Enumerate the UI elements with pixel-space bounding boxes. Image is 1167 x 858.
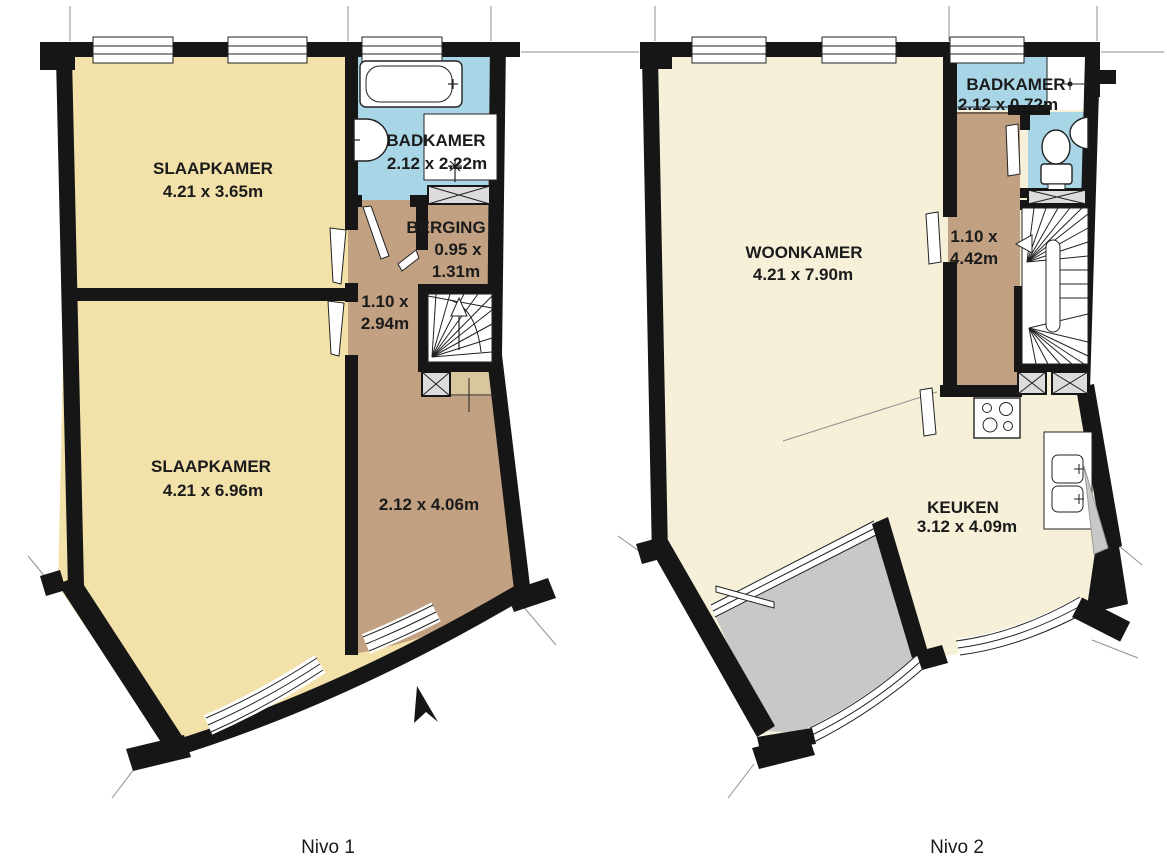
door-leaf (1006, 124, 1020, 176)
floorplan-drawing: SLAAPKAMER 4.21 x 3.65m BADKAMER 2.12 x … (0, 0, 1167, 858)
stair-rail (1046, 240, 1060, 332)
north-arrow-icon (414, 686, 438, 723)
room-dim: 2.12 x 0.72m (958, 95, 1058, 114)
window (93, 37, 173, 63)
room-dim: 4.21 x 6.96m (163, 481, 263, 500)
room-dim: 4.21 x 7.90m (753, 265, 853, 284)
window (362, 37, 442, 63)
bathtub-inner (366, 66, 452, 102)
room-label: BERGING (406, 218, 485, 237)
room-label: BADKAMER (386, 131, 485, 150)
window (692, 37, 766, 63)
room-label: SLAAPKAMER (151, 457, 271, 476)
burner (1000, 403, 1013, 416)
level-caption-nivo2: Nivo 2 (930, 837, 984, 858)
toilet-tank (1041, 164, 1072, 184)
room-label: WOONKAMER (745, 243, 862, 262)
window (822, 37, 896, 63)
burner (1004, 422, 1013, 431)
floorplan-page: SLAAPKAMER 4.21 x 3.65m BADKAMER 2.12 x … (0, 0, 1167, 858)
stove (974, 398, 1020, 438)
burner (983, 418, 997, 432)
room-label: BADKAMER (966, 75, 1065, 94)
room-dim: 2.12 x 2.22m (387, 154, 487, 173)
room-label: KEUKEN (927, 498, 999, 517)
window (950, 37, 1024, 63)
room-dim: 2.12 x 4.06m (379, 495, 479, 514)
floorplan-nivo1: SLAAPKAMER 4.21 x 3.65m BADKAMER 2.12 x … (28, 6, 639, 858)
room-dim: 2.94m (361, 314, 409, 333)
room-dim: 4.21 x 3.65m (163, 182, 263, 201)
door-leaf (926, 212, 941, 264)
room-dim: 4.42m (950, 249, 998, 268)
floorplan-nivo2: WOONKAMER 4.21 x 7.90m BADKAMER 2.12 x 0… (618, 6, 1164, 858)
window (228, 37, 307, 63)
north-windows-nivo2 (692, 37, 1024, 63)
room-label: SLAAPKAMER (153, 159, 273, 178)
room-dim: 0.95 x (434, 240, 482, 259)
north-windows-nivo1 (93, 37, 442, 63)
level-caption-nivo1: Nivo 1 (301, 837, 355, 858)
toilet-bowl (1042, 130, 1070, 164)
room-dim: 1.10 x (950, 227, 998, 246)
room-dim: 1.10 x (361, 292, 409, 311)
room-dim: 3.12 x 4.09m (917, 517, 1017, 536)
room-dim: 1.31m (432, 262, 480, 281)
burner (983, 404, 992, 413)
